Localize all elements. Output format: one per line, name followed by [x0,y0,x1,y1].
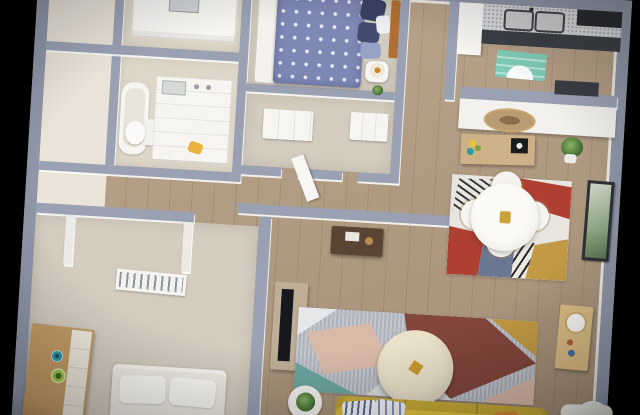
bed-2 [106,364,227,415]
console-decor-white [345,232,360,242]
closet-dresser-b [349,112,389,142]
vanity-knob [206,85,211,90]
ottoman [560,404,613,415]
bed2-pillow [119,375,166,404]
bed-1 [272,0,365,88]
bed1-pillow-periwinkle [361,43,381,59]
console-decor-blue [568,349,576,357]
sink-basin [534,11,565,34]
vanity-knob [194,84,199,89]
sideboard-decor-black [511,138,528,153]
sink-basin [503,9,534,32]
floor-plan-rotated-canvas [0,0,640,415]
sofa-pillow-orange [494,411,518,415]
floor-entry [37,0,119,207]
sideboard-decor-teal [467,148,474,155]
corner-plant-pot [564,154,577,164]
laundry-sink-inset [169,0,200,13]
sideboard-decor-green [475,145,481,151]
apartment-outline [8,0,633,415]
sideboard [460,134,535,166]
vanity-sink [162,80,187,95]
hall-console [330,226,384,257]
wall-closet1-bottom-c [357,172,399,184]
kitchen-stove [577,9,623,28]
dresser-decor-green [50,368,67,385]
sofa-pillow-striped [342,399,378,415]
wall-closet1-bottom-a [241,165,281,176]
round-mirror [564,311,588,335]
table-centerpiece [499,211,511,224]
wall-art [582,180,615,262]
dresser-decor-teal [50,349,63,362]
floor-plan-scene [0,0,640,415]
wall-console [555,304,594,371]
console-decor-bowl [365,237,373,245]
dishwasher [554,80,599,97]
closet-dresser-a [262,108,314,141]
kitchen-mat [495,50,547,82]
bed1-pillow-white [376,15,391,34]
refrigerator [457,2,484,55]
coffee-table-decor [408,360,423,375]
bed2-pillow [168,376,216,408]
console-decor-orange [567,339,574,346]
